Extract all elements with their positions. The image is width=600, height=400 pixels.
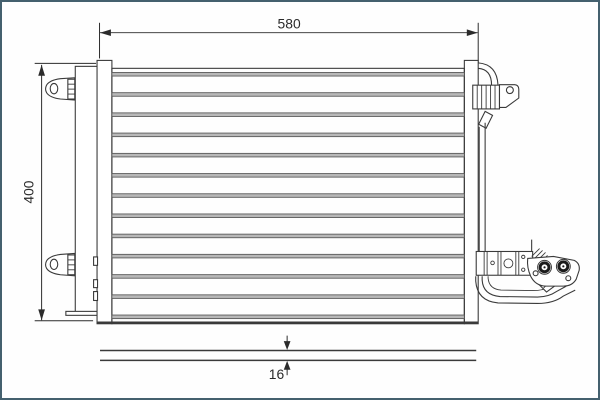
mounting-bracket-bottom: [46, 253, 75, 275]
fitting-port-a: [538, 260, 552, 274]
left-header: [97, 60, 112, 323]
core-tube: [112, 275, 464, 279]
plate-hole: [533, 271, 538, 276]
manifold-block: [476, 251, 532, 275]
core-tube: [112, 113, 464, 117]
pipe-outer-wall: [478, 63, 498, 85]
height-dimension-label: 400: [21, 180, 37, 203]
core-tube: [112, 133, 464, 137]
condenser-drawing-canvas: 580 400: [2, 2, 598, 398]
arrowhead-up-icon: [38, 65, 45, 76]
drawing-frame: 580 400: [0, 0, 600, 400]
core-tube: [112, 174, 464, 178]
arrowhead-down-icon: [284, 341, 291, 350]
arrowhead-up-icon: [284, 361, 291, 370]
mounting-bracket-top: [46, 78, 75, 100]
core-tube: [112, 194, 464, 198]
core-tube: [112, 315, 464, 319]
arrowhead-down-icon: [38, 309, 45, 320]
core-tube: [112, 234, 464, 238]
core-tube: [112, 254, 464, 258]
plate-hole: [566, 276, 571, 281]
dimension-width: 580: [100, 16, 479, 64]
bracket-hole: [50, 259, 58, 269]
fitting-port-b: [556, 259, 570, 273]
left-side-tank: [75, 66, 97, 314]
width-dimension-label: 580: [278, 16, 301, 32]
port-bracket-plate: [528, 256, 580, 286]
core-tube: [112, 153, 464, 157]
outlet-connection-assembly: [476, 240, 580, 304]
condenser-body: [46, 60, 479, 323]
side-profile-view: [100, 350, 476, 360]
bracket-hole: [50, 83, 58, 93]
pipe-bracket: [499, 85, 518, 108]
arrowhead-right-icon: [467, 29, 478, 36]
core-tube: [112, 93, 464, 97]
inlet-pipe-assembly: [473, 63, 519, 252]
bracket-hole: [506, 87, 513, 94]
pipe-sleeve: [473, 85, 500, 109]
core-tube: [112, 72, 464, 76]
left-tank-bottom-cap: [66, 311, 97, 315]
core-tubes: [112, 72, 464, 318]
arrowhead-left-icon: [100, 29, 111, 36]
core-tube: [112, 295, 464, 299]
core-tube: [112, 214, 464, 218]
pipe-inner-wall: [478, 68, 491, 85]
dimension-depth: 16: [269, 336, 291, 383]
depth-dimension-label: 16: [269, 366, 285, 382]
